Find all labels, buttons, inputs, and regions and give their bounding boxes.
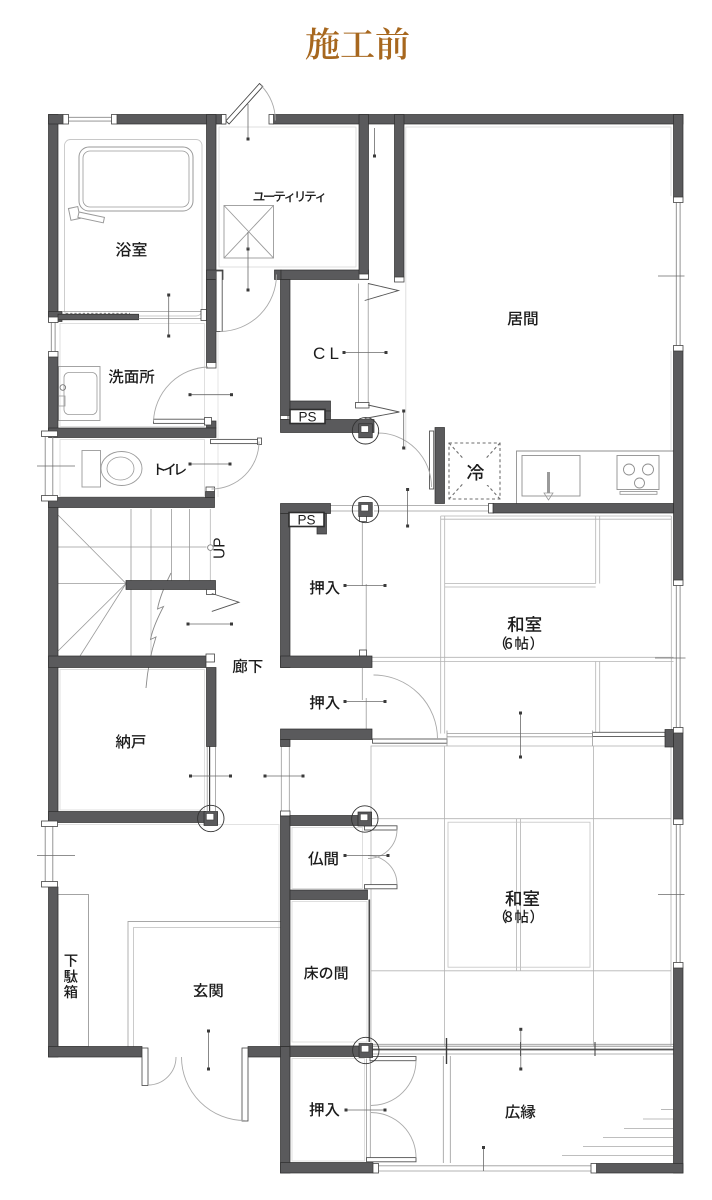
- svg-text:PS: PS: [297, 512, 315, 527]
- svg-text:C: C: [313, 344, 325, 363]
- svg-text:PS: PS: [298, 409, 316, 424]
- svg-text:L: L: [330, 344, 339, 363]
- svg-text:UP: UP: [212, 537, 229, 559]
